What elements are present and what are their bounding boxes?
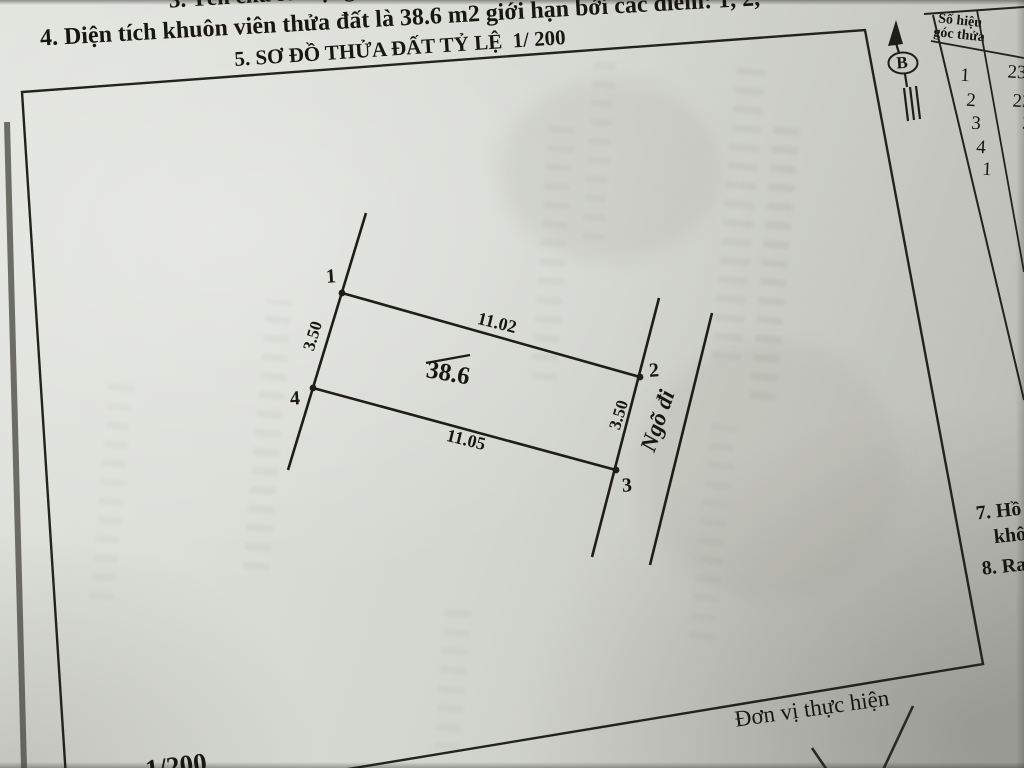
vertex-label-1: 1 [325, 266, 336, 288]
pen-stroke-2 [812, 748, 827, 768]
pen-stroke-1 [883, 706, 913, 768]
vertex-dot-4 [310, 385, 317, 392]
diagram-linework [0, 0, 1024, 768]
table-coordinate-fragment: 23 [1012, 92, 1024, 113]
table-corner-number: 1 [982, 160, 993, 180]
vertex-label-4: 4 [289, 388, 300, 410]
scanned-document-photo: 3. Tên chủ sử dụng 4. Diện tích khuôn vi… [0, 0, 1024, 768]
vertex-label-2: 2 [648, 360, 659, 382]
vertex-dot-3 [613, 467, 620, 474]
north-arrow-hatch-2 [910, 87, 914, 120]
vertex-dot-2 [637, 374, 644, 381]
table-corner-number: 2 [966, 91, 977, 111]
item8-text: 8. Ra [981, 554, 1024, 580]
north-arrow-hatch-1 [904, 88, 908, 121]
diagram-frame-border [22, 30, 983, 768]
north-label: B [896, 54, 909, 73]
paper-left-edge [7, 122, 24, 768]
north-arrow-hatch-3 [916, 86, 920, 119]
vertex-dot-1 [339, 290, 346, 297]
plot-top-edge [342, 293, 640, 377]
table-corner-number: 3 [971, 114, 982, 134]
north-arrow-shaft-lower [905, 74, 907, 87]
table-corner-number: 1 [960, 66, 971, 86]
vertex-label-3: 3 [621, 475, 632, 497]
table-coordinate-fragment: 23 [1007, 63, 1024, 84]
item7-text-line2: khô [993, 524, 1024, 548]
table-corner-number: 4 [976, 138, 987, 158]
